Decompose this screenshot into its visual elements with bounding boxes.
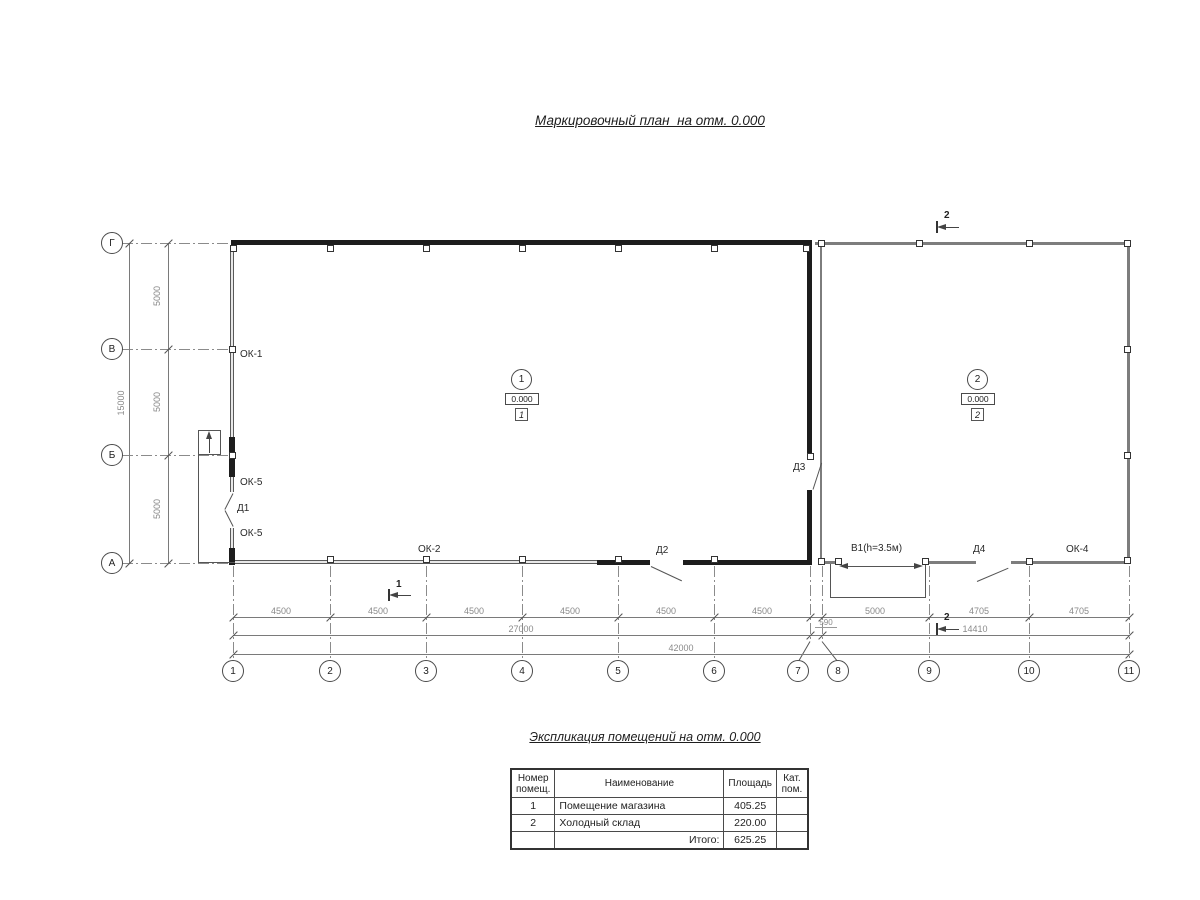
room-cat bbox=[776, 815, 808, 832]
col-marker bbox=[423, 556, 430, 563]
label-v1: В1(h=3.5м) bbox=[851, 543, 902, 554]
schedule-col-name: Наименование bbox=[555, 769, 724, 798]
col-bubble-3: 3 bbox=[415, 660, 437, 682]
col-bubble-8: 8 bbox=[827, 660, 849, 682]
col-marker bbox=[803, 245, 810, 252]
total-area: 625.25 bbox=[724, 832, 777, 850]
room-1-type-tag: 1 bbox=[515, 408, 528, 421]
col-marker bbox=[519, 245, 526, 252]
section-1-bottom-arrow-icon bbox=[389, 592, 398, 598]
col-marker bbox=[711, 245, 718, 252]
room-name: Холодный склад bbox=[555, 815, 724, 832]
grid-line-6 bbox=[714, 566, 715, 660]
dim-4705: 4705 bbox=[955, 606, 1003, 616]
room-2-type-tag: 2 bbox=[971, 408, 984, 421]
label-ok5-lower: ОК-5 bbox=[240, 528, 263, 539]
door-d2-leaf bbox=[651, 566, 682, 581]
schedule-row: 1 Помещение магазина 405.25 bbox=[511, 798, 808, 815]
plan-title: Маркировочный план на отм. 0.000 bbox=[420, 113, 880, 128]
col-bubble-4: 4 bbox=[511, 660, 533, 682]
section-2-top-line bbox=[944, 227, 959, 228]
room-area: 220.00 bbox=[724, 815, 777, 832]
wall-b1-right-upper bbox=[807, 240, 812, 460]
col-marker bbox=[423, 245, 430, 252]
dim-42000: 42000 bbox=[657, 643, 705, 653]
room-2-number: 2 bbox=[967, 369, 988, 390]
window-ok2 bbox=[235, 560, 597, 564]
dim-row-1 bbox=[233, 617, 1129, 618]
col-marker bbox=[818, 558, 825, 565]
label-ok1: ОК-1 bbox=[240, 349, 263, 360]
room-1-elevation: 0.000 bbox=[505, 393, 539, 405]
dim-4500: 4500 bbox=[354, 606, 402, 616]
section-1-bottom-line bbox=[396, 595, 411, 596]
col-marker bbox=[1124, 557, 1131, 564]
dock-right-edge bbox=[925, 564, 926, 597]
door-d4-leaf bbox=[977, 568, 1009, 582]
dim-line-5000 bbox=[168, 243, 169, 563]
grid-line-11 bbox=[1129, 566, 1130, 660]
room-1-number: 1 bbox=[511, 369, 532, 390]
axis-bubble-b: Б bbox=[101, 444, 123, 466]
dim-15000: 15000 bbox=[116, 384, 126, 422]
col-marker bbox=[327, 245, 334, 252]
axis-line-v bbox=[122, 349, 234, 350]
col-bubble-7: 7 bbox=[787, 660, 809, 682]
label-d1: Д1 bbox=[237, 503, 249, 514]
entrance-arrow-stem bbox=[209, 437, 210, 453]
dim-590: 590 bbox=[815, 618, 837, 628]
room-area: 405.25 bbox=[724, 798, 777, 815]
room-cat bbox=[776, 798, 808, 815]
wall-b2-bottom-2 bbox=[925, 561, 976, 564]
wall-b2-right bbox=[1127, 242, 1130, 564]
schedule-total-row: Итого: 625.25 bbox=[511, 832, 808, 850]
dock-left-edge bbox=[830, 564, 831, 597]
col-marker bbox=[519, 556, 526, 563]
room-num: 1 bbox=[511, 798, 555, 815]
dim-line-15000 bbox=[129, 243, 130, 563]
col-marker bbox=[1124, 346, 1131, 353]
col-marker bbox=[818, 240, 825, 247]
dim-5000-1: 5000 bbox=[152, 280, 162, 312]
col-marker bbox=[230, 245, 237, 252]
grid-leader-7 bbox=[799, 641, 811, 661]
col-marker bbox=[922, 558, 929, 565]
wall-b2-top bbox=[815, 242, 1130, 245]
section-2-top-arrow-icon bbox=[937, 224, 946, 230]
total-label: Итого: bbox=[555, 832, 724, 850]
col-bubble-2: 2 bbox=[319, 660, 341, 682]
dim-5000-3: 5000 bbox=[152, 493, 162, 525]
schedule-col-area: Площадь bbox=[724, 769, 777, 798]
dock-bottom-edge bbox=[830, 597, 926, 598]
door-d1-leaf bbox=[224, 493, 233, 509]
grid-line-4 bbox=[522, 566, 523, 660]
schedule-title: Экспликация помещений на отм. 0.000 bbox=[480, 730, 810, 744]
col-marker bbox=[1124, 452, 1131, 459]
drawing-canvas: Маркировочный план на отм. 0.000 5000 50… bbox=[0, 0, 1200, 900]
dim-27000: 27000 bbox=[497, 624, 545, 634]
col-marker bbox=[615, 245, 622, 252]
col-marker bbox=[711, 556, 718, 563]
wall-b1-bottom-right bbox=[683, 560, 812, 565]
section-2-top-label: 2 bbox=[944, 210, 950, 221]
gate-v1-line bbox=[847, 566, 915, 567]
window-ok1 bbox=[230, 245, 234, 437]
section-2-bottom-label: 2 bbox=[944, 612, 950, 623]
dim-4500: 4500 bbox=[642, 606, 690, 616]
wall-b2-left bbox=[820, 245, 822, 563]
label-d2: Д2 bbox=[656, 545, 668, 556]
col-marker bbox=[1026, 240, 1033, 247]
axis-line-a bbox=[122, 563, 234, 564]
col-marker bbox=[615, 556, 622, 563]
dim-4500: 4500 bbox=[546, 606, 594, 616]
col-bubble-9: 9 bbox=[918, 660, 940, 682]
schedule-table: Номер помещ. Наименование Площадь Кат. п… bbox=[510, 768, 809, 850]
platform-bottom-edge bbox=[198, 562, 235, 563]
col-marker bbox=[1026, 558, 1033, 565]
axis-line-b bbox=[122, 455, 234, 456]
room-name: Помещение магазина bbox=[555, 798, 724, 815]
label-d3: Д3 bbox=[793, 462, 805, 473]
door-d1-leaf bbox=[225, 510, 234, 526]
col-bubble-11: 11 bbox=[1118, 660, 1140, 682]
wall-b1-bottom-mid bbox=[597, 560, 650, 565]
empty-cell bbox=[776, 832, 808, 850]
axis-line-g bbox=[122, 243, 234, 244]
label-ok4: ОК-4 bbox=[1066, 544, 1089, 555]
col-marker bbox=[229, 346, 236, 353]
window-ok5-upper bbox=[230, 477, 234, 492]
col-bubble-6: 6 bbox=[703, 660, 725, 682]
col-marker bbox=[916, 240, 923, 247]
dim-4500: 4500 bbox=[257, 606, 305, 616]
schedule-col-cat: Кат. пом. bbox=[776, 769, 808, 798]
grid-line-1 bbox=[233, 566, 234, 660]
grid-leader-8 bbox=[822, 641, 838, 661]
dim-row-3 bbox=[233, 654, 1129, 655]
section-1-bottom-label: 1 bbox=[396, 579, 402, 590]
label-ok2: ОК-2 bbox=[418, 544, 441, 555]
grid-line-5 bbox=[618, 566, 619, 660]
room-num: 2 bbox=[511, 815, 555, 832]
dim-4500: 4500 bbox=[738, 606, 786, 616]
section-2-bottom-arrow-icon bbox=[937, 626, 946, 632]
dim-4500: 4500 bbox=[450, 606, 498, 616]
dim-5000r: 5000 bbox=[851, 606, 899, 616]
schedule-row: 2 Холодный склад 220.00 bbox=[511, 815, 808, 832]
col-marker bbox=[807, 453, 814, 460]
wall-b1-right-lower bbox=[807, 490, 812, 565]
dim-4705: 4705 bbox=[1055, 606, 1103, 616]
grid-line-3 bbox=[426, 566, 427, 660]
label-ok5-upper: ОК-5 bbox=[240, 477, 263, 488]
axis-bubble-v: В bbox=[101, 338, 123, 360]
section-2-bottom-line bbox=[944, 629, 959, 630]
schedule-col-num: Номер помещ. bbox=[511, 769, 555, 798]
grid-line-10 bbox=[1029, 566, 1030, 660]
col-bubble-1: 1 bbox=[222, 660, 244, 682]
grid-line-9 bbox=[929, 566, 930, 660]
dim-row-2 bbox=[233, 635, 1129, 636]
grid-line-7 bbox=[810, 566, 811, 641]
axis-bubble-g: Г bbox=[101, 232, 123, 254]
col-bubble-10: 10 bbox=[1018, 660, 1040, 682]
label-d4: Д4 bbox=[973, 544, 985, 555]
col-marker bbox=[327, 556, 334, 563]
window-ok5-lower bbox=[230, 528, 234, 548]
grid-line-2 bbox=[330, 566, 331, 660]
schedule-header-row: Номер помещ. Наименование Площадь Кат. п… bbox=[511, 769, 808, 798]
room-2-elevation: 0.000 bbox=[961, 393, 995, 405]
entrance-arrow-up-icon bbox=[206, 431, 212, 439]
col-marker bbox=[1124, 240, 1131, 247]
col-bubble-5: 5 bbox=[607, 660, 629, 682]
empty-cell bbox=[511, 832, 555, 850]
platform-left-edge bbox=[198, 455, 199, 563]
grid-line-8 bbox=[822, 566, 823, 641]
col-marker bbox=[835, 558, 842, 565]
dim-5000-2: 5000 bbox=[152, 386, 162, 418]
axis-bubble-a: А bbox=[101, 552, 123, 574]
col-marker bbox=[229, 452, 236, 459]
